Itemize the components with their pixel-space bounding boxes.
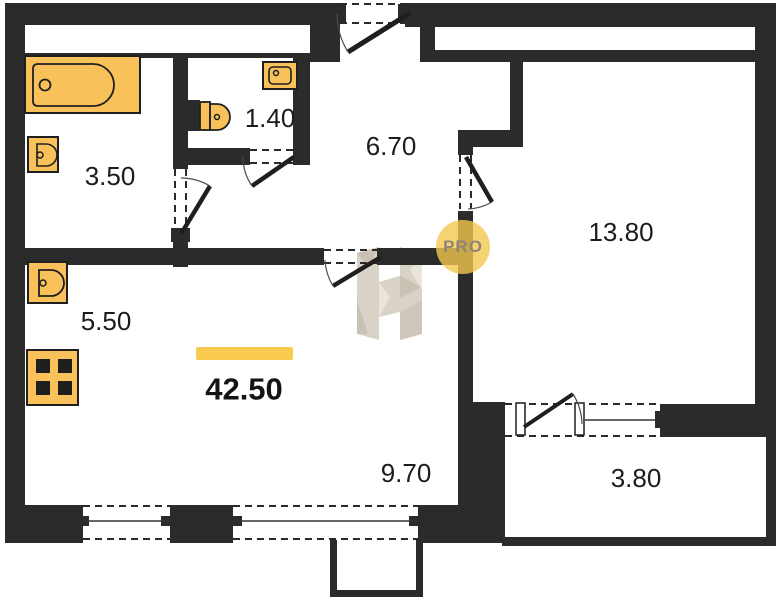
area-label-bathroom: 3.50 bbox=[85, 163, 136, 189]
wc-sink-icon bbox=[263, 62, 297, 89]
wall-slots bbox=[25, 25, 755, 53]
area-label-living-zone: 9.70 bbox=[381, 460, 432, 486]
entrance-door bbox=[337, 13, 410, 52]
porch-outline bbox=[330, 540, 423, 597]
balcony-door bbox=[524, 394, 582, 427]
kitchen-sink-icon bbox=[28, 262, 67, 303]
area-label-balcony: 3.80 bbox=[611, 465, 662, 491]
area-label-bedroom: 13.80 bbox=[588, 219, 653, 245]
floor-plan-drawing bbox=[0, 0, 778, 600]
floor-plan: 3.50 1.40 6.70 13.80 5.50 9.70 3.80 42.5… bbox=[0, 0, 778, 600]
bedroom-door bbox=[466, 157, 492, 209]
bathroom-sink-icon bbox=[28, 137, 58, 172]
area-label-wc: 1.40 bbox=[245, 105, 296, 131]
total-area-label: 42.50 bbox=[205, 374, 283, 405]
total-area-highlight-bar bbox=[196, 347, 293, 360]
area-label-kitchen: 5.50 bbox=[81, 308, 132, 334]
toilet-icon bbox=[200, 102, 230, 130]
pro-badge-label: PRO bbox=[423, 236, 503, 258]
area-label-hallway: 6.70 bbox=[366, 133, 417, 159]
wc-door bbox=[243, 157, 294, 186]
bathtub-icon bbox=[25, 56, 140, 113]
stove-icon bbox=[27, 350, 78, 405]
